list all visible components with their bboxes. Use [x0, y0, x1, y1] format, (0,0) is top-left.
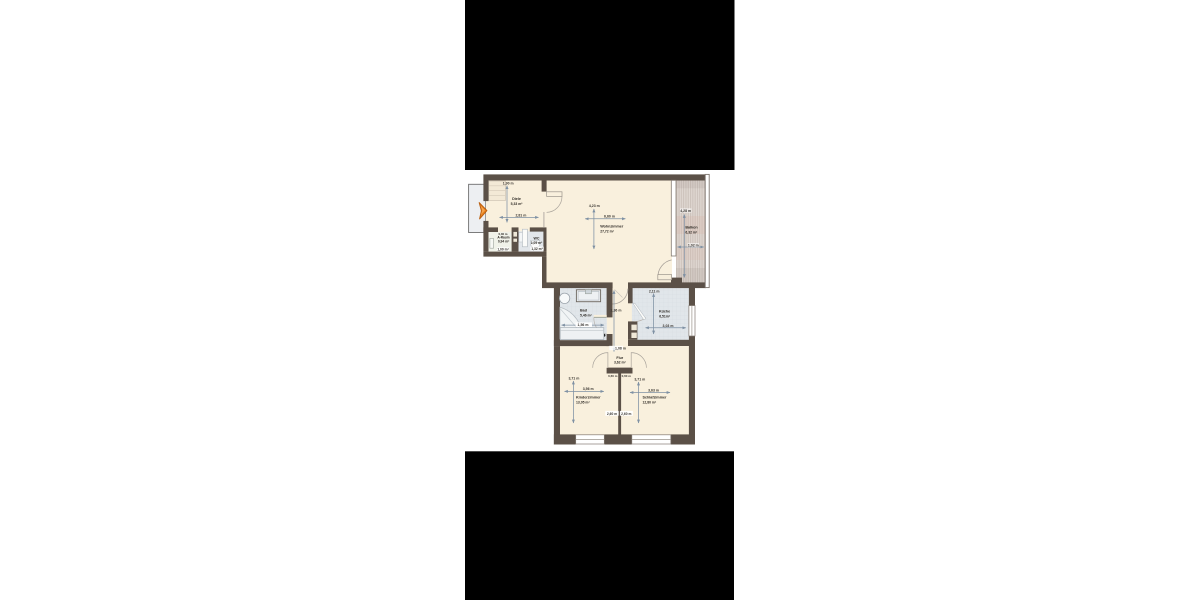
svg-text:5,46 m²: 5,46 m² [580, 313, 593, 317]
svg-text:3,56 m: 3,56 m [583, 387, 594, 391]
svg-text:1,09 m²: 1,09 m² [531, 241, 543, 245]
svg-text:6,51m²: 6,51m² [659, 315, 671, 319]
svg-text:2,36 m: 2,36 m [611, 308, 622, 312]
svg-text:3,63 m: 3,63 m [648, 388, 659, 392]
svg-text:1,02 m: 1,02 m [688, 243, 699, 247]
svg-text:WC: WC [534, 236, 540, 240]
svg-text:Küche: Küche [659, 309, 670, 313]
svg-text:3,62 m²: 3,62 m² [614, 361, 627, 365]
svg-text:Kinderzimmer: Kinderzimmer [576, 395, 601, 399]
svg-text:3,71 m: 3,71 m [568, 377, 579, 381]
svg-text:2,60 m: 2,60 m [607, 412, 617, 416]
svg-text:Schlafzimmer: Schlafzimmer [643, 395, 668, 399]
svg-text:1,32 m²: 1,32 m² [531, 247, 543, 251]
svg-text:1,08 m: 1,08 m [615, 346, 626, 350]
svg-text:3,71 m: 3,71 m [634, 377, 645, 381]
svg-text:Bad: Bad [580, 308, 588, 312]
svg-text:0,94 m²: 0,94 m² [498, 240, 510, 244]
svg-text:6,32 m²: 6,32 m² [685, 231, 698, 235]
svg-text:Balkon: Balkon [685, 225, 698, 229]
svg-text:2,81 m: 2,81 m [515, 213, 526, 217]
svg-text:0,60 m: 0,60 m [608, 374, 618, 378]
svg-text:13,05 m²: 13,05 m² [576, 400, 590, 404]
svg-text:5,33 m²: 5,33 m² [511, 202, 524, 206]
svg-text:2,11 m: 2,11 m [649, 290, 660, 294]
svg-text:27,72 m²: 27,72 m² [600, 230, 614, 234]
svg-text:Wohnzimmer: Wohnzimmer [600, 224, 624, 228]
svg-text:2,60 m: 2,60 m [621, 412, 631, 416]
svg-text:12,80 m²: 12,80 m² [643, 400, 657, 404]
svg-text:4,28 m: 4,28 m [680, 209, 691, 213]
svg-text:6,60 m: 6,60 m [604, 215, 615, 219]
svg-text:Flur: Flur [616, 356, 623, 360]
svg-text:Diele: Diele [512, 197, 521, 201]
svg-text:1,00 m²: 1,00 m² [497, 247, 509, 251]
svg-text:1,56 m: 1,56 m [578, 323, 589, 327]
svg-text:1,90 m: 1,90 m [503, 181, 514, 185]
svg-text:0,60 m: 0,60 m [622, 374, 632, 378]
svg-text:3,03 m: 3,03 m [663, 324, 674, 328]
svg-text:4,23 m: 4,23 m [589, 204, 600, 208]
